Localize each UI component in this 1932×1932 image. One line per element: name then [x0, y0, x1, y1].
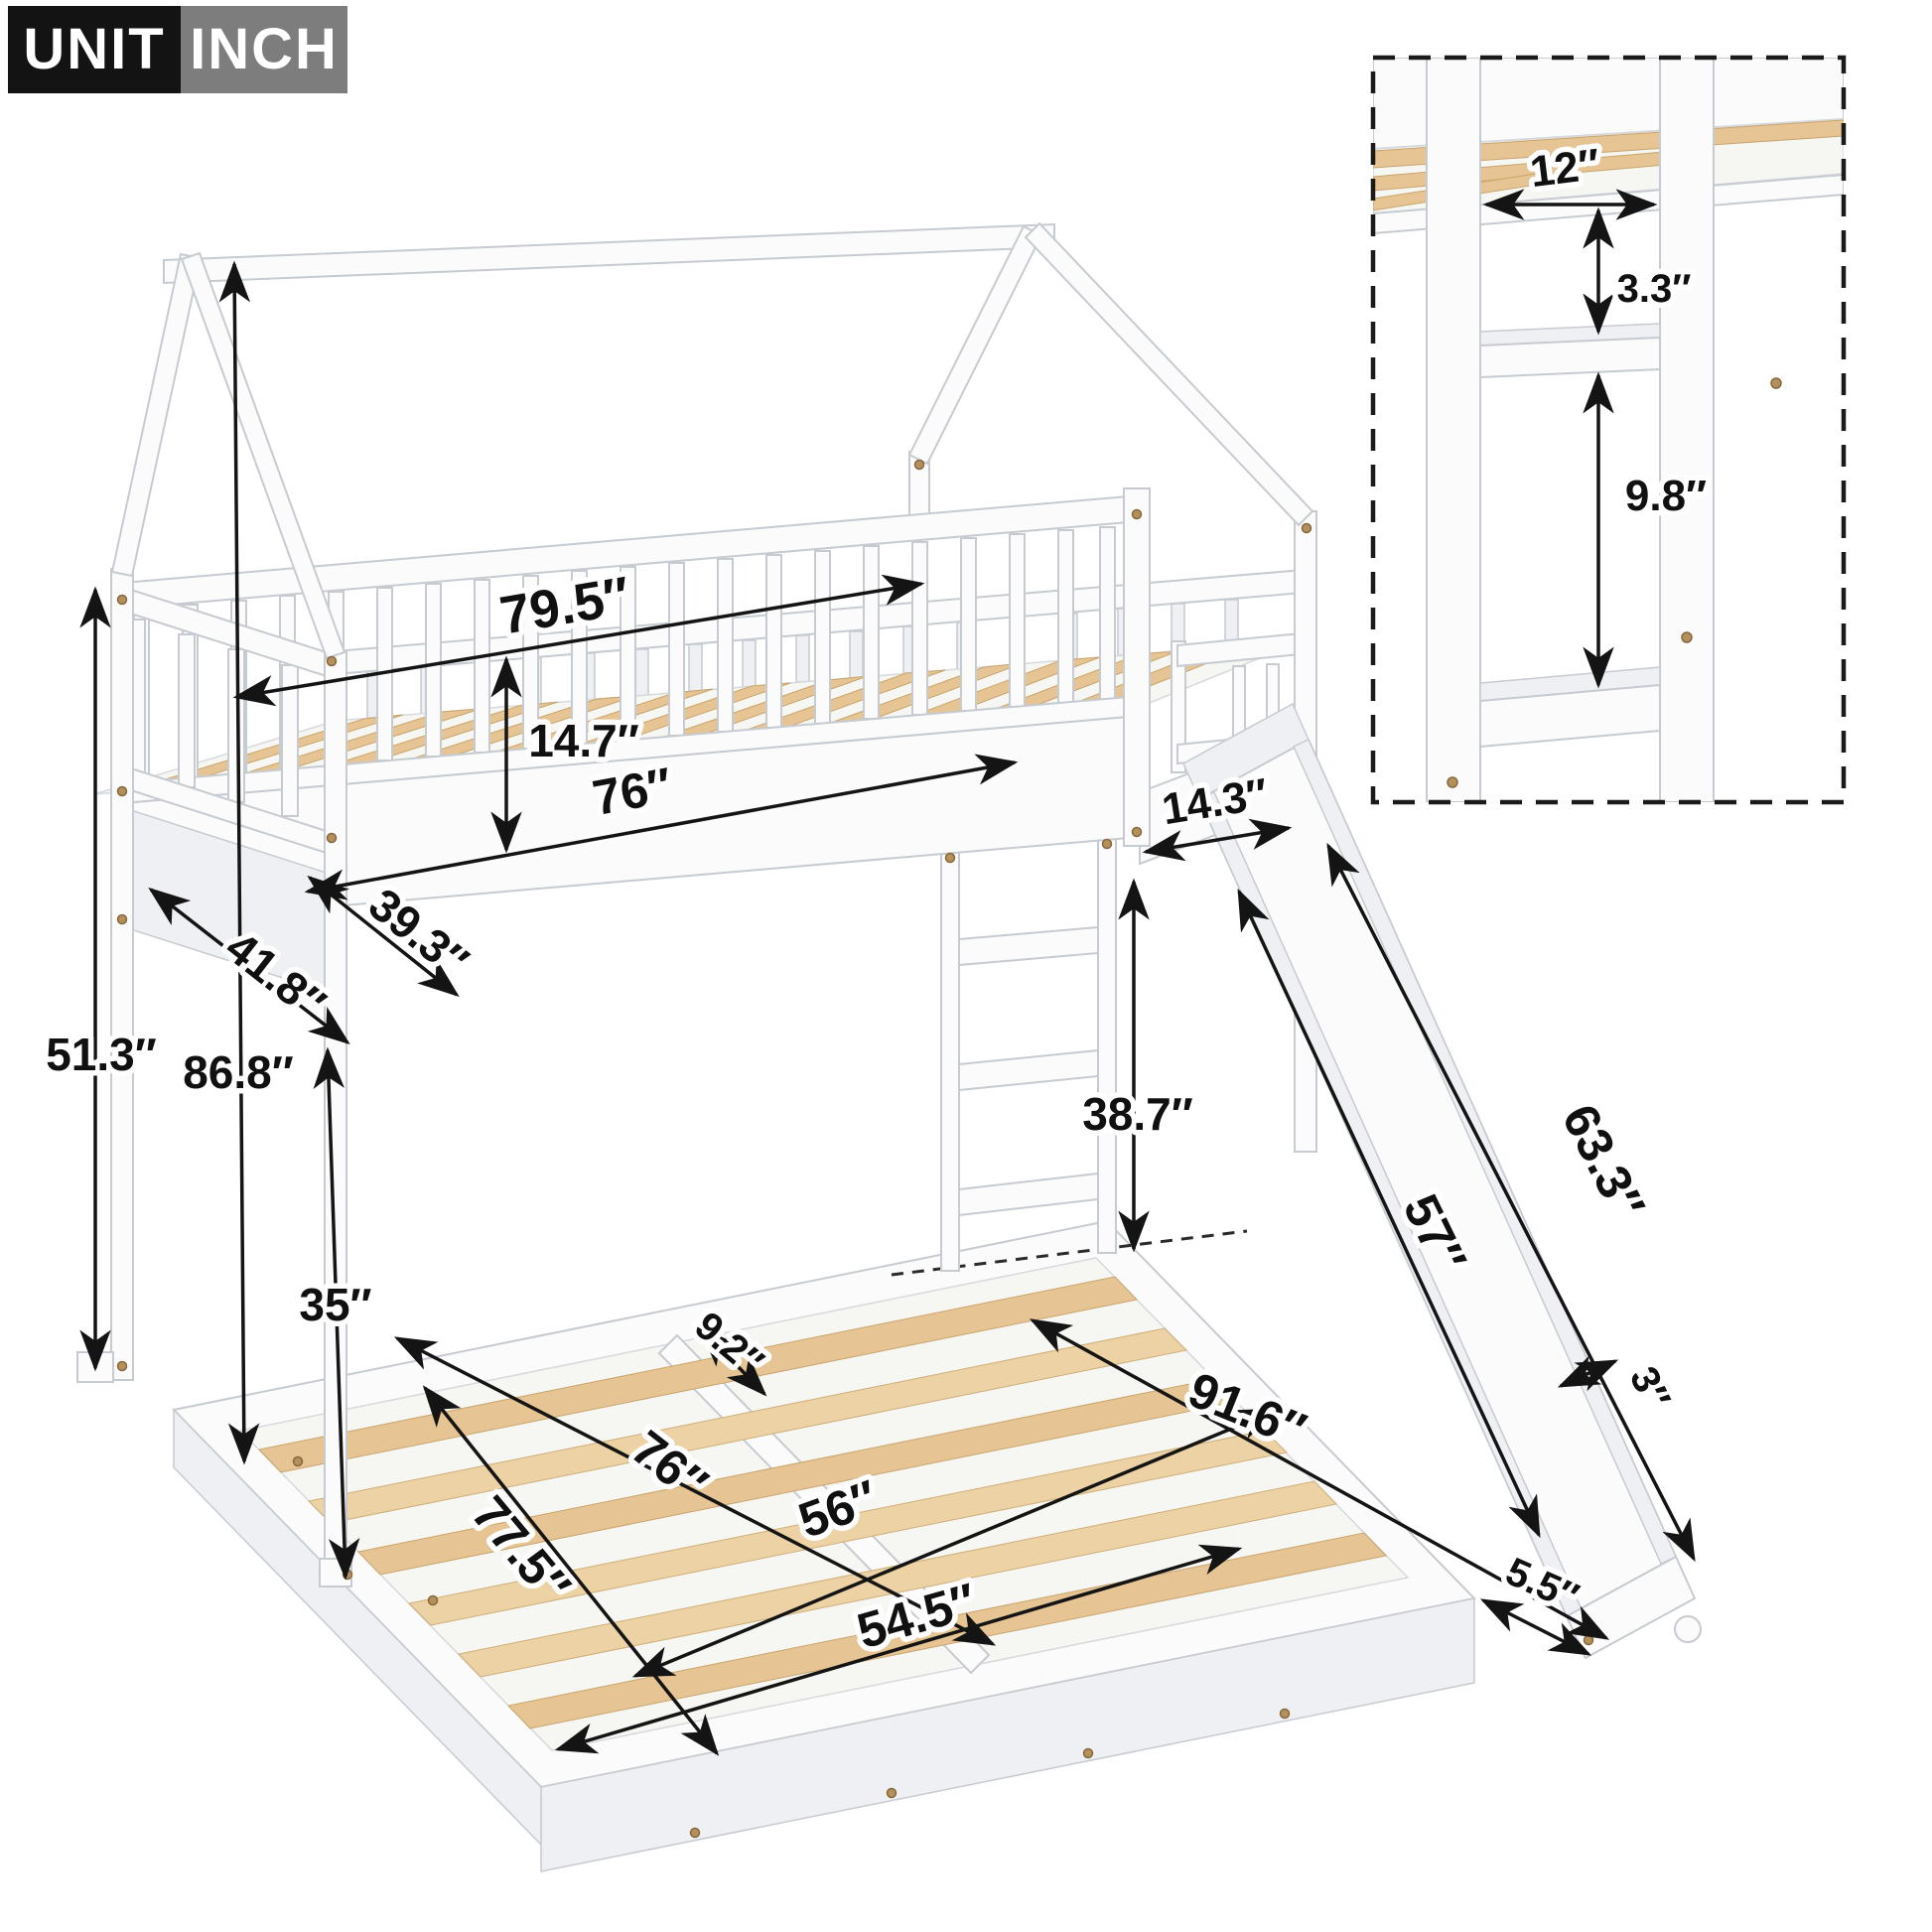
dim-inset-step-gap-bottom: 9.8″	[1625, 472, 1707, 520]
dim-inset-step-gap-top: 3.3″	[1617, 267, 1692, 311]
dim-rail-to-floor-height: 51.3″	[46, 1029, 157, 1080]
dim-guardrail-height: 14.7″	[528, 715, 639, 766]
inset-detail	[1373, 58, 1844, 802]
dim-under-bunk-height: 35″	[299, 1279, 371, 1330]
dim-overall-height: 86.8″	[183, 1046, 294, 1098]
back-left-post	[325, 650, 346, 1584]
dim-ladder-clearance: 38.7″	[1082, 1088, 1193, 1140]
inset-ladder-left-stile	[1427, 58, 1480, 802]
diagram-canvas: 79.5″ 14.7″ 76″ 39.3″ 41.8″ 51.3″ 86.8″ …	[0, 0, 1932, 1932]
inset-ladder-rung-1	[1480, 338, 1660, 377]
dim-slide-outer-length: 63.3″	[1552, 1096, 1656, 1229]
unit-badge-value: INCH	[181, 6, 347, 93]
ladder	[941, 832, 1116, 1271]
inset-ladder-right-stile	[1660, 58, 1714, 802]
bunk-bed-dimension-diagram: 79.5″ 14.7″ 76″ 39.3″ 41.8″ 51.3″ 86.8″ …	[0, 0, 1932, 1932]
guardrail-end-post	[1124, 488, 1150, 846]
front-left-post	[111, 569, 133, 1380]
ridge-beam	[164, 224, 1054, 283]
dim-inset-step-width: 12″	[1527, 140, 1601, 197]
unit-badge: UNIT INCH	[8, 6, 347, 93]
dim-slide-depth: 3″	[1621, 1360, 1679, 1417]
unit-badge-label: UNIT	[8, 6, 181, 93]
